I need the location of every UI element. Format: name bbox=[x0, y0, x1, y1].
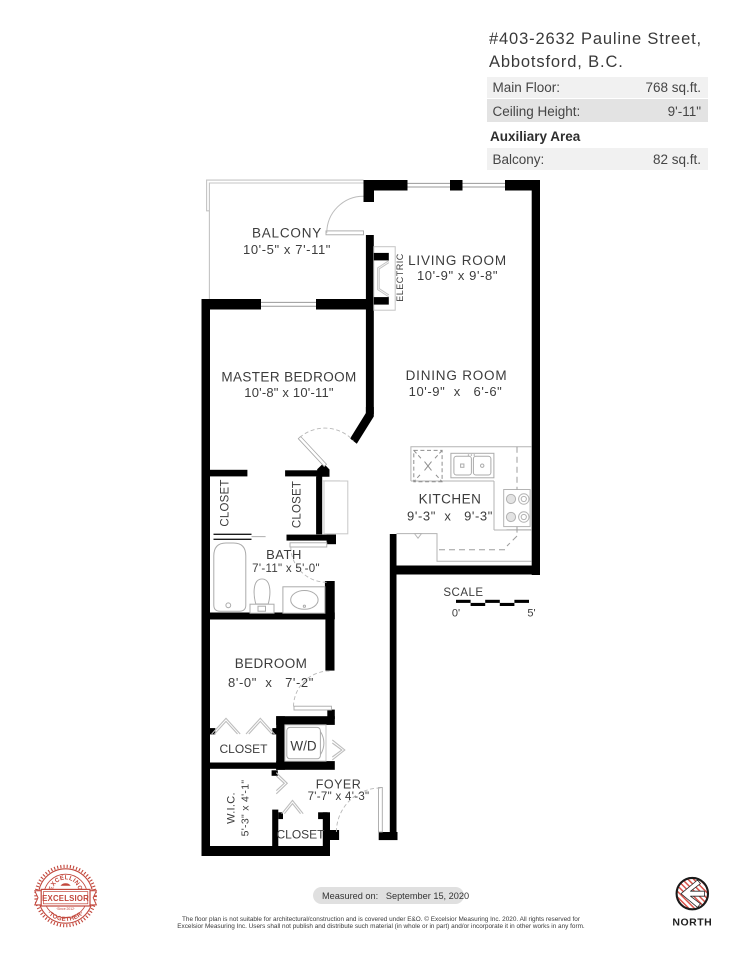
svg-text:KITCHEN: KITCHEN bbox=[419, 492, 482, 507]
svg-text:CLOSET: CLOSET bbox=[276, 828, 325, 842]
svg-text:10'-9" x 9'-8": 10'-9" x 9'-8" bbox=[417, 268, 498, 283]
svg-text:BATH: BATH bbox=[266, 547, 302, 562]
svg-text:FOYER: FOYER bbox=[316, 778, 362, 792]
svg-text:7'-7" x 4'-3": 7'-7" x 4'-3" bbox=[308, 791, 370, 803]
svg-text:10'-8" x 10'-11": 10'-8" x 10'-11" bbox=[244, 385, 334, 400]
svg-text:MASTER BEDROOM: MASTER BEDROOM bbox=[221, 370, 356, 385]
svg-text:CLOSET: CLOSET bbox=[292, 481, 304, 528]
svg-text:9'-3" x 9'-3": 9'-3" x 9'-3" bbox=[407, 509, 493, 524]
svg-text:W/D: W/D bbox=[290, 739, 316, 754]
svg-text:BEDROOM: BEDROOM bbox=[235, 656, 308, 671]
svg-text:DINING ROOM: DINING ROOM bbox=[406, 368, 508, 383]
svg-text:W.I.C.: W.I.C. bbox=[226, 792, 238, 824]
svg-text:CLOSET: CLOSET bbox=[220, 479, 232, 526]
svg-text:5'-3" x 4'-1": 5'-3" x 4'-1" bbox=[240, 780, 252, 837]
svg-text:LIVING ROOM: LIVING ROOM bbox=[408, 253, 507, 268]
svg-text:BALCONY: BALCONY bbox=[252, 226, 322, 241]
svg-text:5': 5' bbox=[527, 608, 535, 620]
svg-text:8'-0" x 7'-2": 8'-0" x 7'-2" bbox=[228, 675, 314, 690]
svg-text:CLOSET: CLOSET bbox=[219, 742, 268, 756]
svg-text:·Since 2012·: ·Since 2012· bbox=[56, 907, 75, 911]
svg-text:7'-11" x 5'-0": 7'-11" x 5'-0" bbox=[252, 563, 320, 575]
svg-text:ELECTRIC: ELECTRIC bbox=[395, 253, 405, 302]
svg-text:10'-9" x 6'-6": 10'-9" x 6'-6" bbox=[409, 384, 503, 399]
svg-text:SCALE: SCALE bbox=[443, 587, 483, 599]
svg-text:EXCELSIOR: EXCELSIOR bbox=[42, 894, 89, 903]
svg-text:10'-5" x 7'-11": 10'-5" x 7'-11" bbox=[243, 242, 331, 257]
svg-text:0': 0' bbox=[452, 608, 460, 620]
